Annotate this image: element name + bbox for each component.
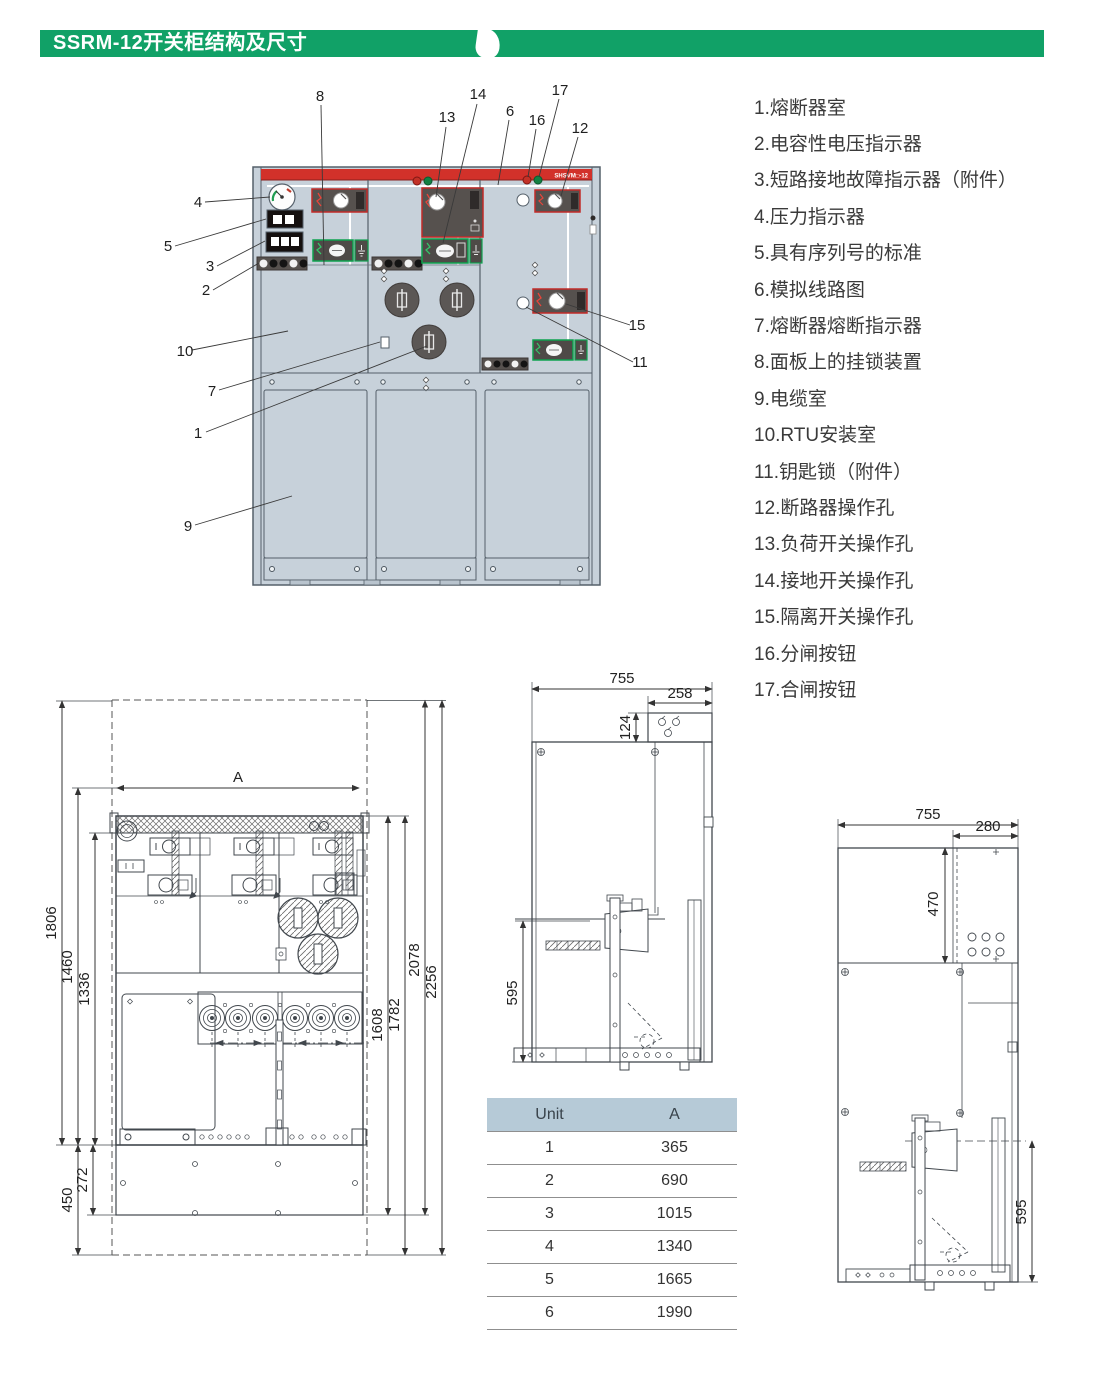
dim-470: 470 bbox=[925, 891, 942, 916]
dim-1806: 1806 bbox=[43, 906, 60, 939]
dim-2256: 2256 bbox=[423, 965, 440, 998]
legend-item: 5.具有序列号的标准 bbox=[754, 234, 1064, 270]
dim-124: 124 bbox=[617, 715, 634, 740]
table-cell: 5 bbox=[487, 1264, 612, 1296]
circuit-breaker-module bbox=[422, 188, 483, 237]
callout-13: 13 bbox=[439, 109, 456, 126]
voltage-indicator-strip bbox=[482, 358, 528, 370]
table-cell: 690 bbox=[612, 1165, 737, 1197]
model-label: SHSVM□-12 bbox=[554, 174, 588, 180]
callout-10: 10 bbox=[177, 343, 194, 360]
table-cell: 4 bbox=[487, 1231, 612, 1263]
callout-8: 8 bbox=[316, 88, 324, 105]
switch-mechanism bbox=[148, 831, 210, 904]
table-cell: 3 bbox=[487, 1198, 612, 1230]
callout-3: 3 bbox=[206, 258, 214, 275]
legend-item: 12.断路器操作孔 bbox=[754, 488, 1064, 524]
legend-item: 17.合闸按钮 bbox=[754, 670, 1064, 706]
fuse-circles bbox=[276, 898, 358, 974]
table-cell: 2 bbox=[487, 1165, 612, 1197]
callout-1: 1 bbox=[194, 425, 202, 442]
table-cell: 1 bbox=[487, 1132, 612, 1164]
table-row: 1 365 bbox=[487, 1132, 737, 1165]
fault-indicator-display bbox=[266, 232, 303, 252]
legend-item: 1.熔断器室 bbox=[754, 88, 1064, 124]
callout-9: 9 bbox=[184, 518, 192, 535]
table-row: 3 1015 bbox=[487, 1198, 737, 1231]
callout-2: 2 bbox=[202, 282, 210, 299]
serial-number-display bbox=[267, 210, 303, 228]
dim-2078: 2078 bbox=[406, 943, 423, 976]
callout-12: 12 bbox=[572, 120, 589, 137]
callout-15: 15 bbox=[629, 317, 646, 334]
table-header-row: Unit A bbox=[487, 1098, 737, 1132]
unit-dimension-table: Unit A 1 365 2 690 3 1015 4 1340 5 1665 … bbox=[487, 1098, 737, 1330]
table-cell: 1990 bbox=[612, 1297, 737, 1329]
dim-1336: 1336 bbox=[76, 972, 93, 1005]
catalog-page: SSRM-12开关柜结构及尺寸 1.熔断器室 2.电容性电压指示器 3.短路接地… bbox=[0, 0, 1100, 1382]
callout-11: 11 bbox=[632, 354, 648, 371]
table-row: 4 1340 bbox=[487, 1231, 737, 1264]
side-rail-marker bbox=[591, 216, 596, 221]
table-header-a: A bbox=[612, 1098, 737, 1131]
dim-1460: 1460 bbox=[59, 950, 76, 983]
dim-A: A bbox=[233, 769, 243, 786]
legend-item: 4.压力指示器 bbox=[754, 197, 1064, 233]
close-button bbox=[534, 176, 542, 184]
legend-item: 2.电容性电压指示器 bbox=[754, 124, 1064, 160]
legend-item: 9.电缆室 bbox=[754, 379, 1064, 415]
side-view-tall-cabinet: 755 280 470 595 bbox=[820, 800, 1080, 1310]
callout-5: 5 bbox=[164, 238, 172, 255]
dim-595: 595 bbox=[1013, 1199, 1030, 1224]
callout-7: 7 bbox=[208, 383, 216, 400]
legend-item: 8.面板上的挂锁装置 bbox=[754, 343, 1064, 379]
dim-258: 258 bbox=[667, 685, 692, 702]
voltage-indicator-strip bbox=[372, 257, 423, 270]
legend-item: 11.钥匙锁（附件） bbox=[754, 452, 1064, 488]
table-cell: 1665 bbox=[612, 1264, 737, 1296]
section-header-bar: SSRM-12开关柜结构及尺寸 bbox=[40, 30, 1044, 57]
dim-755: 755 bbox=[915, 806, 940, 823]
earthing-switch-module bbox=[533, 340, 587, 360]
pressure-gauge bbox=[269, 184, 295, 210]
callout-17: 17 bbox=[552, 82, 569, 99]
dim-280: 280 bbox=[975, 818, 1000, 835]
legend-item: 13.负荷开关操作孔 bbox=[754, 525, 1064, 561]
dim-1782: 1782 bbox=[386, 998, 403, 1031]
page-title: SSRM-12开关柜结构及尺寸 bbox=[40, 30, 1044, 57]
load-switch-module bbox=[312, 189, 367, 212]
cabinet-front-view-drawing: SHSVM□-12 bbox=[140, 75, 660, 605]
legend-item: 16.分闸按钮 bbox=[754, 634, 1064, 670]
callout-4: 4 bbox=[194, 194, 202, 211]
legend-item: 7.熔断器熔断指示器 bbox=[754, 306, 1064, 342]
table-cell: 1015 bbox=[612, 1198, 737, 1230]
legend-item: 10.RTU安装室 bbox=[754, 416, 1064, 452]
cable-door bbox=[122, 994, 215, 1130]
side-rail-tag bbox=[590, 225, 596, 234]
legend-item: 3.短路接地故障指示器（附件） bbox=[754, 161, 1064, 197]
trip-button bbox=[523, 176, 531, 184]
legend-item: 15.隔离开关操作孔 bbox=[754, 597, 1064, 633]
dim-595: 595 bbox=[504, 980, 521, 1005]
side-view-low-cabinet: 755 258 124 595 bbox=[490, 665, 740, 1085]
table-header-unit: Unit bbox=[487, 1098, 612, 1131]
switch-mechanism bbox=[232, 831, 294, 904]
dim-272: 272 bbox=[74, 1167, 91, 1192]
table-cell: 1340 bbox=[612, 1231, 737, 1263]
legend-item: 14.接地开关操作孔 bbox=[754, 561, 1064, 597]
callout-14: 14 bbox=[470, 86, 487, 103]
earthing-switch-module bbox=[313, 240, 368, 261]
table-row: 6 1990 bbox=[487, 1297, 737, 1330]
table-cell: 6 bbox=[487, 1297, 612, 1329]
legend-item: 6.模拟线路图 bbox=[754, 270, 1064, 306]
dim-1608: 1608 bbox=[369, 1008, 386, 1041]
fuse-blown-indicator bbox=[381, 337, 389, 348]
dimensioned-front-view: A 1806 1460 1336 450 272 1608 1782 2078 … bbox=[30, 680, 490, 1280]
table-row: 2 690 bbox=[487, 1165, 737, 1198]
voltage-indicator-strip bbox=[257, 257, 308, 270]
earthing-switch-module bbox=[422, 239, 482, 263]
callout-6: 6 bbox=[506, 103, 514, 120]
callout-16: 16 bbox=[529, 112, 546, 129]
table-row: 5 1665 bbox=[487, 1264, 737, 1297]
legend-list: 1.熔断器室 2.电容性电压指示器 3.短路接地故障指示器（附件） 4.压力指示… bbox=[754, 88, 1064, 707]
dim-755: 755 bbox=[609, 670, 634, 687]
table-cell: 365 bbox=[612, 1132, 737, 1164]
rtu-mounting-holes bbox=[968, 933, 1004, 956]
